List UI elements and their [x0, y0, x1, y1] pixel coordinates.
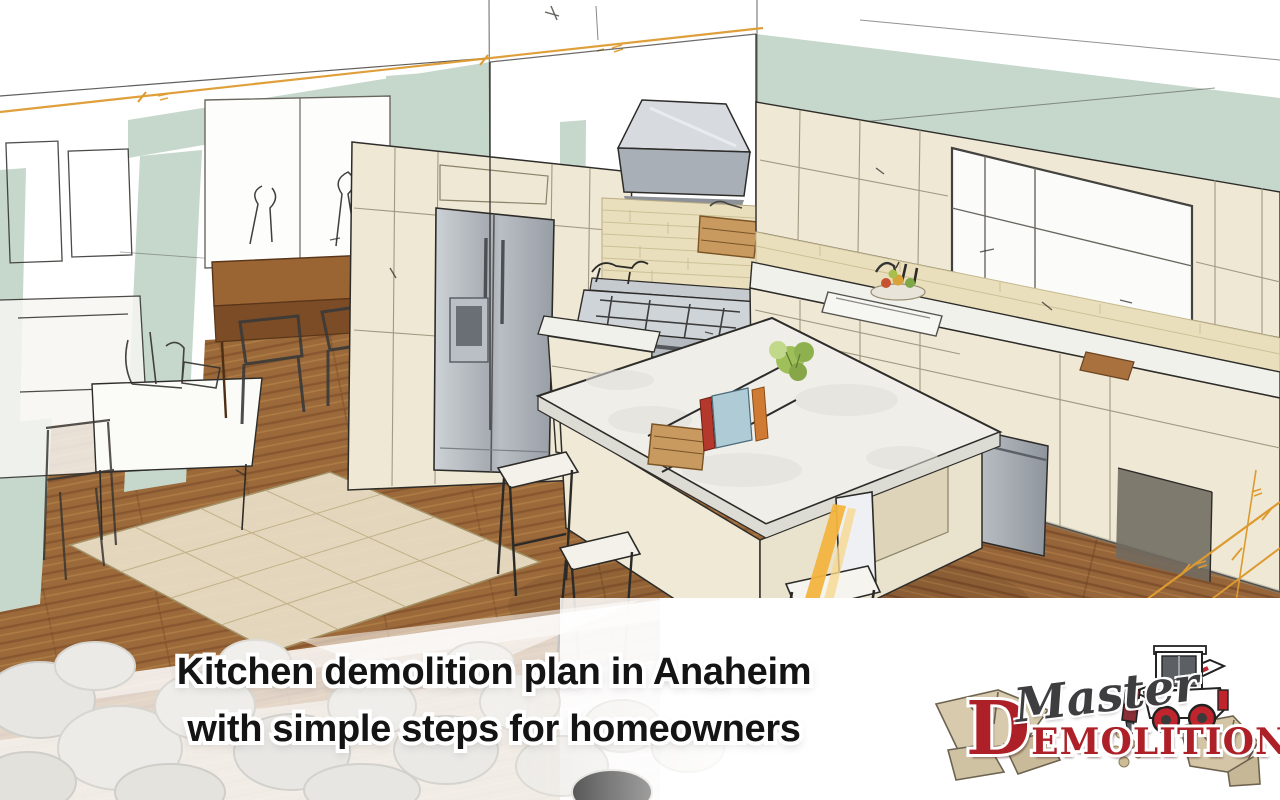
blue-book — [712, 388, 752, 448]
hero-caption: Kitchen demolition plan in Anaheim Kitch… — [4, 644, 984, 758]
range-hood — [618, 100, 750, 206]
refrigerator — [434, 208, 554, 474]
hero-banner: Kitchen demolition plan in Anaheim Kitch… — [0, 0, 1280, 800]
wooden-crate — [648, 424, 706, 470]
master-demolition-logo: DEMOLITION DEMOLITION Master — [928, 632, 1268, 796]
hero-title-line2: with simple steps for homeowners with si… — [4, 701, 984, 758]
hero-title-line1: Kitchen demolition plan in Anaheim Kitch… — [4, 644, 984, 701]
